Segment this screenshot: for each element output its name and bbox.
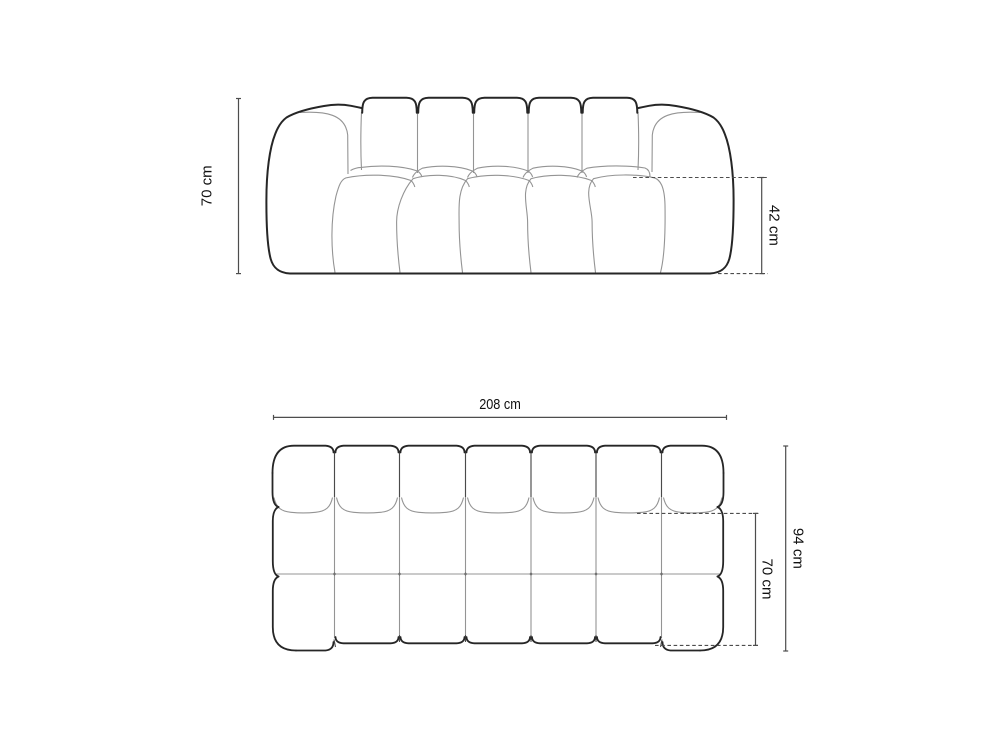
svg-text:42 cm: 42 cm xyxy=(766,205,782,246)
svg-text:70 cm: 70 cm xyxy=(759,559,775,600)
svg-text:70 cm: 70 cm xyxy=(199,165,215,206)
svg-text:94 cm: 94 cm xyxy=(789,528,805,569)
svg-text:208 cm: 208 cm xyxy=(479,397,521,413)
